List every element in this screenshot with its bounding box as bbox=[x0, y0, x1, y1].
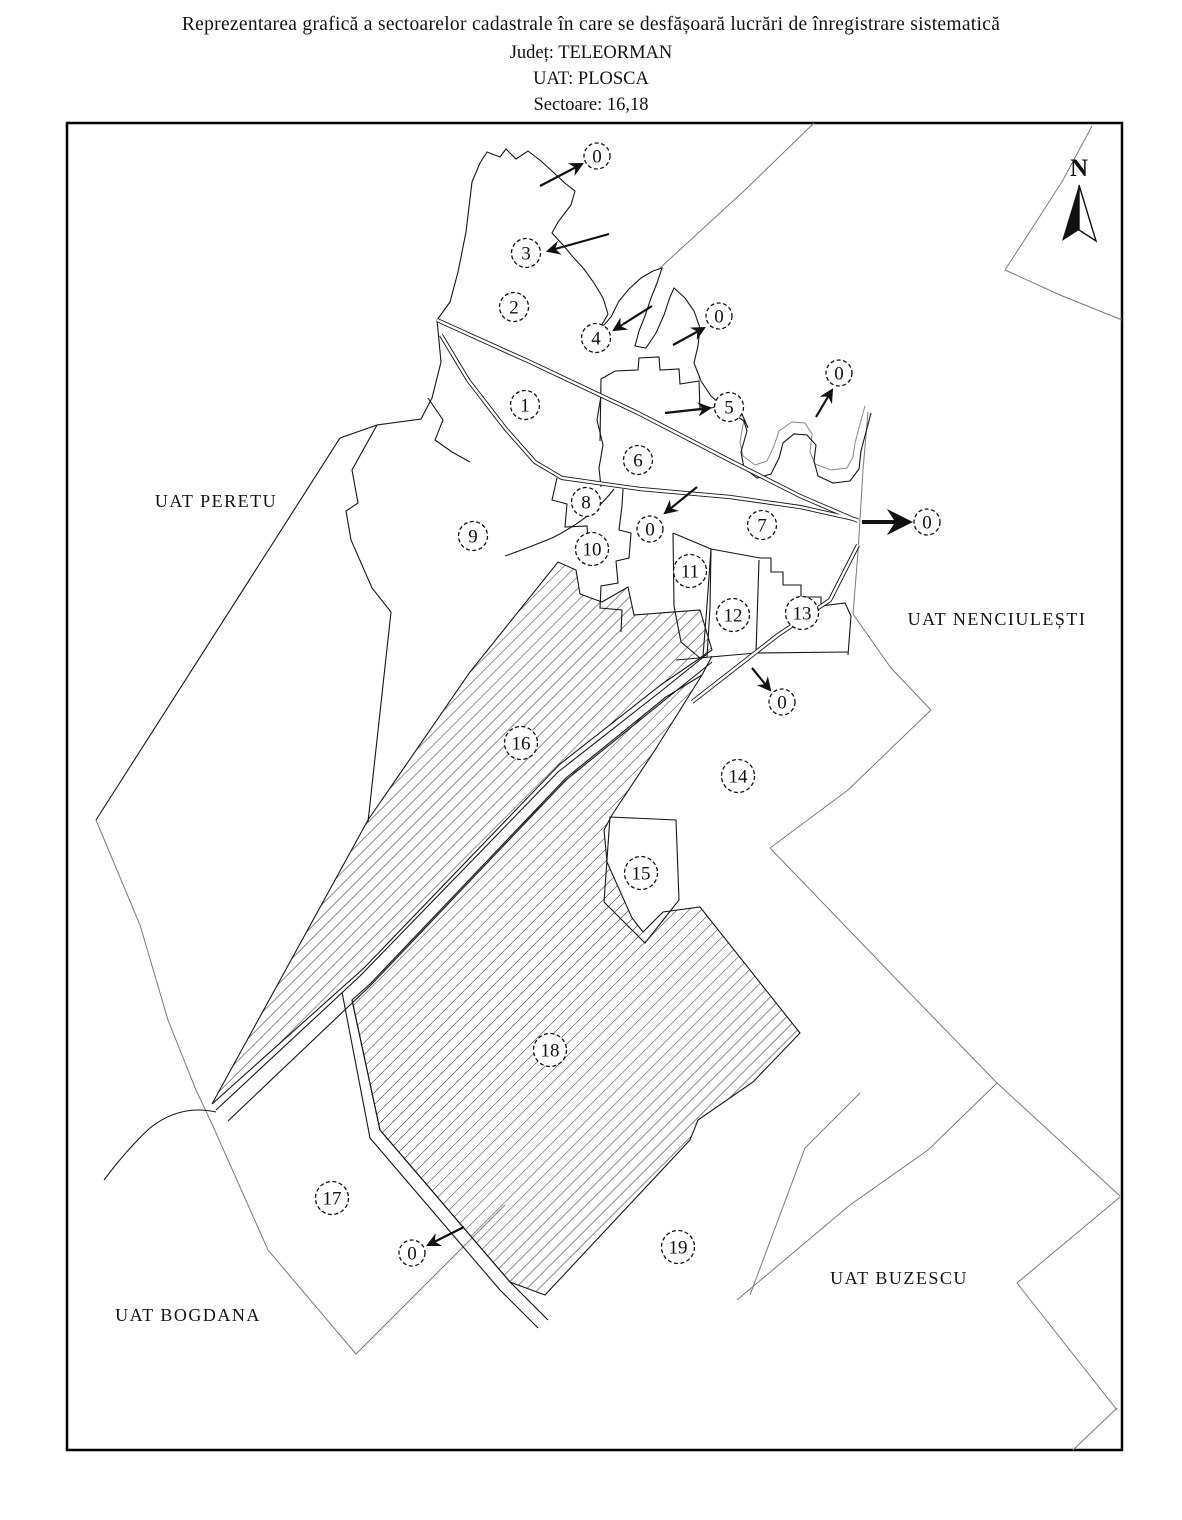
sector-marker-4: 4 bbox=[582, 324, 611, 353]
sector-marker-13: 13 bbox=[786, 597, 819, 630]
sector-marker-8: 8 bbox=[572, 488, 601, 517]
sector-marker-15: 15 bbox=[625, 857, 658, 890]
uat-name-label: UAT BUZESCU bbox=[830, 1268, 968, 1288]
sector-marker-0: 0 bbox=[399, 1240, 425, 1266]
sector-marker-2: 2 bbox=[500, 293, 529, 322]
sector-marker-17: 17 bbox=[316, 1182, 349, 1215]
sector-number: 0 bbox=[777, 692, 787, 713]
sector-number: 0 bbox=[922, 512, 932, 533]
uat-name-label: UAT NENCIULEȘTI bbox=[908, 609, 1087, 629]
sector-number: 19 bbox=[669, 1237, 688, 1258]
sector-marker-0: 0 bbox=[637, 516, 663, 542]
sector-marker-7: 7 bbox=[748, 511, 777, 540]
sector-marker-18: 18 bbox=[534, 1034, 567, 1067]
sector-number: 4 bbox=[591, 328, 601, 349]
sector-number: 0 bbox=[407, 1243, 417, 1264]
sector-marker-0: 0 bbox=[826, 360, 852, 386]
sector-marker-5: 5 bbox=[715, 393, 744, 422]
sector-number: 0 bbox=[834, 363, 844, 384]
sector-number: 18 bbox=[541, 1040, 560, 1061]
cadastral-map-page: { "title": { "line1": "Reprezentarea gra… bbox=[0, 0, 1182, 1520]
sector-number: 12 bbox=[724, 605, 743, 626]
north-label: N bbox=[1070, 155, 1088, 182]
sector-marker-0: 0 bbox=[584, 143, 610, 169]
sector-marker-3: 3 bbox=[512, 239, 541, 268]
sector-number: 16 bbox=[512, 733, 531, 754]
sector-marker-10: 10 bbox=[576, 533, 609, 566]
sector-number: 0 bbox=[645, 519, 655, 540]
sector-marker-9: 9 bbox=[459, 522, 488, 551]
sector-number: 13 bbox=[793, 603, 812, 624]
sector-number: 3 bbox=[521, 243, 531, 264]
uat-name-label: UAT BOGDANA bbox=[115, 1305, 261, 1325]
sector-number: 9 bbox=[468, 526, 478, 547]
sector-marker-0: 0 bbox=[706, 303, 732, 329]
sector-marker-14: 14 bbox=[722, 760, 755, 793]
sector-marker-12: 12 bbox=[717, 599, 750, 632]
sector-number: 17 bbox=[323, 1188, 342, 1209]
map-canvas: N 123456789101112131415161718190000000 U… bbox=[0, 0, 1182, 1520]
sector-marker-1: 1 bbox=[511, 391, 540, 420]
sector-number: 8 bbox=[581, 492, 591, 513]
sector-marker-0: 0 bbox=[914, 509, 940, 535]
sector-number: 7 bbox=[757, 515, 767, 536]
sector-number: 2 bbox=[509, 297, 519, 318]
sector-marker-0: 0 bbox=[769, 689, 795, 715]
sector-marker-6: 6 bbox=[624, 446, 653, 475]
sector-number: 14 bbox=[729, 766, 749, 787]
sector-number: 10 bbox=[583, 539, 602, 560]
sector-number: 0 bbox=[714, 306, 724, 327]
sector-number: 0 bbox=[592, 146, 602, 167]
sector-marker-16: 16 bbox=[505, 727, 538, 760]
sector-number: 5 bbox=[724, 397, 734, 418]
sector-number: 15 bbox=[632, 863, 651, 884]
sector-number: 11 bbox=[681, 561, 699, 582]
sector-number: 1 bbox=[520, 395, 530, 416]
sector-marker-11: 11 bbox=[674, 555, 707, 588]
sector-number: 6 bbox=[633, 450, 643, 471]
sector-marker-19: 19 bbox=[662, 1231, 695, 1264]
uat-name-label: UAT PERETU bbox=[155, 491, 277, 511]
